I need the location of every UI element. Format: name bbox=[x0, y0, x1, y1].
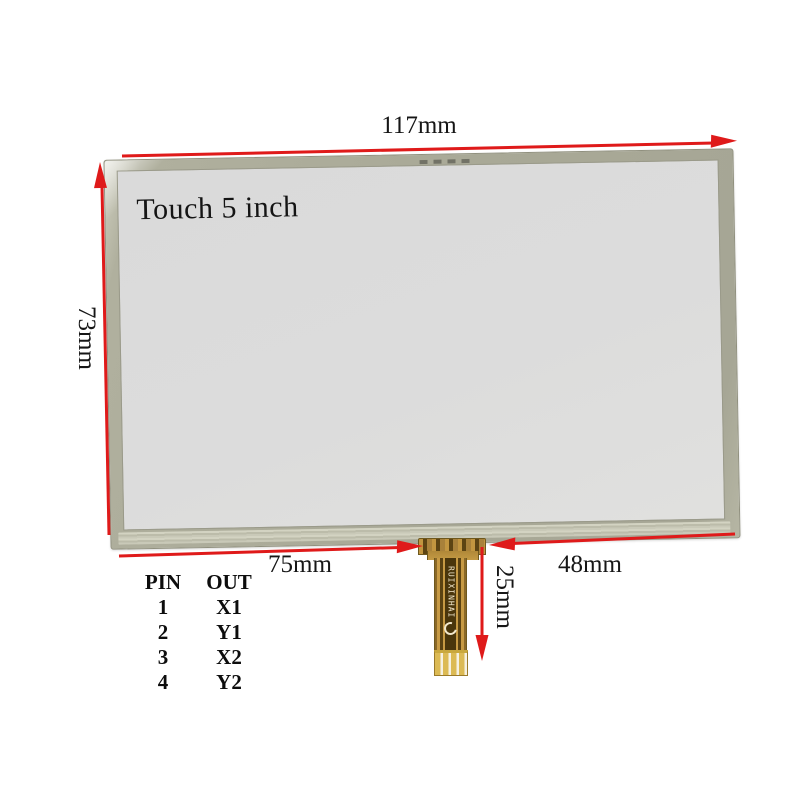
width-dim-arrowhead-icon bbox=[711, 135, 737, 148]
pinout-row-out: Y1 bbox=[196, 620, 262, 645]
cable-logo-icon bbox=[442, 620, 460, 638]
pinout-header-pin: PIN bbox=[130, 570, 196, 595]
bottom-right-dim-label: 48mm bbox=[542, 551, 638, 579]
product-annotation-image: Touch 5 inch RUIXINHAI 117mm 73mm 75mm bbox=[0, 0, 800, 800]
pinout-row-pin: 3 bbox=[130, 645, 196, 670]
pinout-row-out: X2 bbox=[196, 645, 262, 670]
touchscreen-glass: Touch 5 inch bbox=[117, 160, 725, 531]
cable-brand-text: RUIXINHAI bbox=[447, 566, 455, 618]
height-dim-label: 73mm bbox=[72, 298, 100, 378]
touchscreen-panel: Touch 5 inch bbox=[103, 148, 740, 549]
pinout-row-pin: 2 bbox=[130, 620, 196, 645]
cable-length-dim-label: 25mm bbox=[490, 557, 518, 637]
pinout-row-out: X1 bbox=[196, 595, 262, 620]
pinout-row-pin: 4 bbox=[130, 670, 196, 695]
cable-length-dim-arrowhead-icon bbox=[476, 635, 489, 661]
cable-ribbon: RUIXINHAI bbox=[434, 558, 467, 653]
pinout-row-out: Y2 bbox=[196, 670, 262, 695]
pinout-header-out: OUT bbox=[196, 570, 262, 595]
bottom-left-dim-label: 75mm bbox=[252, 551, 348, 579]
pinout-row-pin: 1 bbox=[130, 595, 196, 620]
screen-size-label: Touch 5 inch bbox=[136, 190, 299, 227]
width-dim-label: 117mm bbox=[372, 112, 466, 140]
cable-connector-fingers bbox=[434, 650, 468, 676]
pinout-table: PIN OUT 1 X1 2 Y1 3 X2 4 Y2 bbox=[130, 570, 262, 695]
